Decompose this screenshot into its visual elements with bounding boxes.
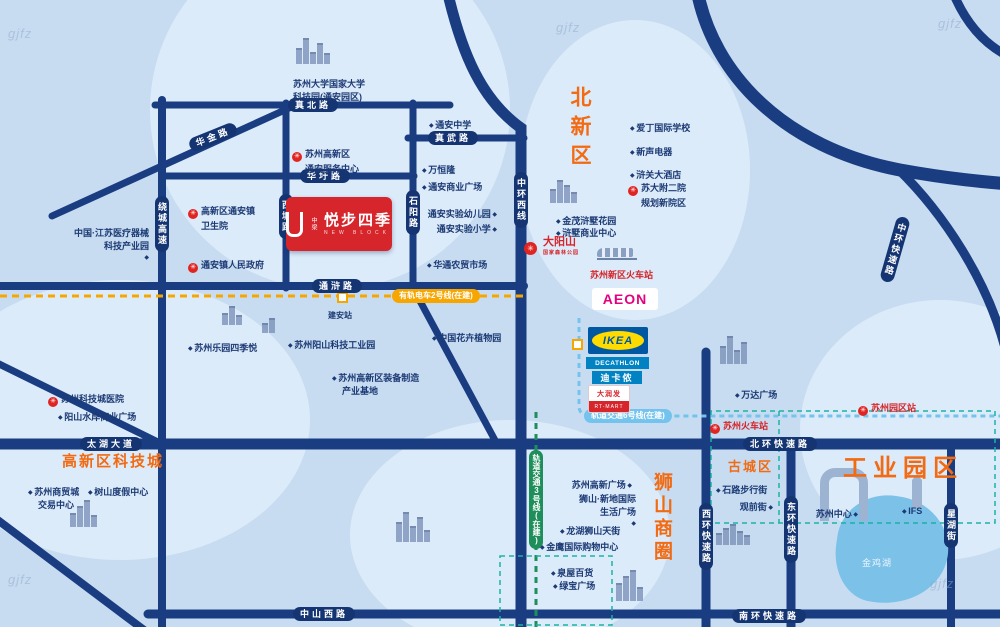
poi-guanqian-street: 观前街 <box>740 500 773 513</box>
poi-yangshan-industrial-park: 苏州阳山科技工业园 <box>288 338 375 351</box>
poi-shuian-plaza: 阳山水岸商业广场 <box>58 410 136 423</box>
poi-shushan-resort: 树山度假中心 <box>88 485 148 498</box>
poi-line: 生活广场 <box>579 505 636 518</box>
poi-international-school: 爱丁国际学校 <box>630 121 690 134</box>
ikea-wordmark: IKEA <box>592 331 644 350</box>
poi-flower-botanical-garden: 中国花卉植物园 <box>432 331 501 344</box>
poi-trade-center: 苏州商贸城 交易中心 <box>28 485 79 511</box>
poi-line: 科技园(通安园区) <box>293 90 365 103</box>
poi-huatong-market: 华通农贸市场 <box>427 258 487 271</box>
poi-wanhenglong: 万恒隆 <box>422 163 455 176</box>
poi-suzhou-railway-station: 苏州火车站 <box>710 419 768 434</box>
district-gucheng: 古城区 <box>728 456 773 475</box>
poi-tongan-plaza: 通安商业广场 <box>422 180 482 193</box>
project-logo: 中梁 悦步四季 NEW BLOCK <box>286 197 392 251</box>
poi-line: 通安镇人民政府 <box>201 260 264 270</box>
red-flower-icon <box>188 209 198 219</box>
jinji-lake-label: 金鸡湖 <box>862 556 892 569</box>
tram-stop-jianan: 建安站 <box>328 310 352 321</box>
poi-xinqu-railway-station: 苏州新区火车站 <box>590 268 653 281</box>
poi-hotel: 浒关大酒店 <box>630 168 681 181</box>
poi-line: 苏大附二院 <box>641 183 686 193</box>
poi-line: 苏州高新区装备制造 <box>338 373 419 383</box>
red-flower-icon <box>292 152 302 162</box>
poi-line: 苏州科技城医院 <box>61 394 124 404</box>
road-label-nanhuan: 南环快速路 <box>732 609 806 623</box>
dayangshan-logo: 大阳山 国家森林公园 <box>524 237 579 259</box>
poi-tongan-government: 通安镇人民政府 <box>188 258 264 273</box>
road-label-tonghu: 通浒路 <box>312 279 362 293</box>
poi-line: 交易中心 <box>38 498 79 511</box>
poi-line: 产业基地 <box>342 384 419 397</box>
transit-overlay <box>0 0 1000 627</box>
poi-suzhou-center: 苏州中心 <box>816 507 858 520</box>
logo-brand: 中梁 <box>309 217 318 231</box>
watermark: gjfz <box>556 20 580 35</box>
road-label-raocheng: 绕城高速 <box>155 196 169 252</box>
road-label-xinghu: 星湖街 <box>944 503 958 548</box>
district-beixinqu: 北新区 <box>564 86 594 173</box>
road-label-donghuan: 东环快速路 <box>784 496 798 563</box>
poi-wanda-plaza: 万达广场 <box>735 388 777 401</box>
red-flower-icon <box>188 263 198 273</box>
poi-shilu-street: 石路步行街 <box>716 483 767 496</box>
district-yuanqu: 工业园区 <box>843 448 963 483</box>
rt-mart-logo: 大润发 RT-MART <box>588 385 630 413</box>
station-label: 苏州火车站 <box>723 421 768 431</box>
poi-line: 苏州高新区 <box>305 149 350 159</box>
poi-line: 通安服务中心 <box>305 162 359 175</box>
poi-kejicheng-hospital: 苏州科技城医院 <box>48 392 124 407</box>
poi-tongan-clinic: 高新区通安镇 卫生院 <box>188 204 255 232</box>
poi-yuanqu-station: 苏州园区站 <box>858 401 916 416</box>
district-kejicheng: 高新区科技城 <box>62 450 164 471</box>
rt-mart-cn: 大润发 <box>589 386 629 401</box>
ikea-logo: IKEA <box>588 327 648 354</box>
watermark: gjfz <box>930 576 954 591</box>
train-icon <box>597 248 637 262</box>
red-flower-icon <box>48 397 58 407</box>
poi-line: 卫生院 <box>201 219 255 232</box>
road-label-zhenwu: 真武路 <box>428 131 478 145</box>
poi-equipment-base: 苏州高新区装备制造 产业基地 <box>332 371 419 397</box>
tram-station-marker <box>337 292 348 303</box>
road-label-taihu: 太湖大道 <box>80 437 142 451</box>
real-estate-location-map: 金鸡湖 真北路 华金路 真武路 华圩路 通浒路 太湖大道 北环快速路 中山西路 … <box>0 0 1000 627</box>
poi-university-park: 苏州大学国家大学 科技园(通安园区) <box>293 77 365 103</box>
project-name-en: NEW BLOCK <box>324 230 392 236</box>
poi-lvbao-plaza: 绿宝广场 <box>553 579 595 592</box>
poi-leyuan-siji: 苏州乐园四季悦 <box>188 341 257 354</box>
red-flower-icon <box>628 186 638 196</box>
red-flower-icon <box>858 406 868 416</box>
poi-tongan-middle-school: 通安中学 <box>429 118 471 131</box>
poi-xinsheng: 新声电器 <box>630 145 672 158</box>
watermark: gjfz <box>8 572 32 587</box>
decathlon-cn-logo: 迪卡侬 <box>592 371 642 384</box>
poi-line: 苏州商贸城 <box>34 487 79 497</box>
aeon-logo: AEON <box>592 288 658 310</box>
district-shishan: 狮山商圈 <box>648 472 675 564</box>
poi-line: 狮山·新地国际 <box>579 494 636 504</box>
poi-tongan-primary-school: 通安实验小学 <box>437 222 497 235</box>
dayangshan-sub: 国家森林公园 <box>543 248 579 259</box>
dayangshan-icon <box>524 242 537 255</box>
metro-station-marker <box>572 339 583 350</box>
poi-tongan-service-center: 苏州高新区 通安服务中心 <box>292 147 359 175</box>
dayangshan-name: 大阳山 <box>543 236 576 248</box>
poi-quanwu: 泉屋百货 <box>551 566 593 579</box>
poi-line: 规划新院区 <box>641 196 686 209</box>
poi-xindi-life-plaza: 狮山·新地国际 生活广场 <box>579 492 636 528</box>
project-name: 悦步四季 <box>324 212 392 229</box>
metro-line3-label: 轨道交通3号线(在建) <box>529 450 543 549</box>
watermark: gjfz <box>938 16 962 31</box>
tram-line2-label: 有轨电车2号线(在建) <box>392 289 480 303</box>
poi-line: 科技产业园 <box>74 239 149 252</box>
poi-suda-hospital: 苏大附二院 规划新院区 <box>628 181 686 209</box>
poi-line: 高新区通安镇 <box>201 206 255 216</box>
logo-u-icon <box>286 212 303 237</box>
road-label-shiyang: 石阳路 <box>406 190 420 235</box>
watermark: gjfz <box>8 26 32 41</box>
red-flower-icon <box>710 424 720 434</box>
poi-line: 中国·江苏医疗器械 <box>74 228 149 238</box>
road-label-beihuan: 北环快速路 <box>743 437 817 451</box>
poi-tongan-kindergarten: 通安实验幼儿园 <box>428 207 497 220</box>
poi-gaoxin-plaza: 苏州高新广场 <box>572 478 632 491</box>
rt-mart-en: RT-MART <box>589 401 629 412</box>
poi-jinying-mall: 金鹰国际购物中心 <box>540 540 618 553</box>
road-label-zhonghuanxi: 中环西线 <box>514 172 528 228</box>
road-label-xihuan: 西环快速路 <box>699 503 713 570</box>
decathlon-logo: DECATHLON <box>586 357 649 369</box>
poi-line: 苏州大学国家大学 <box>293 79 365 89</box>
poi-ifs: IFS <box>902 506 922 516</box>
station-label: 苏州园区站 <box>871 403 916 413</box>
poi-medical-device-park: 中国·江苏医疗器械 科技产业园 <box>74 226 149 262</box>
road-label-zhongshanxi: 中山西路 <box>293 607 355 621</box>
